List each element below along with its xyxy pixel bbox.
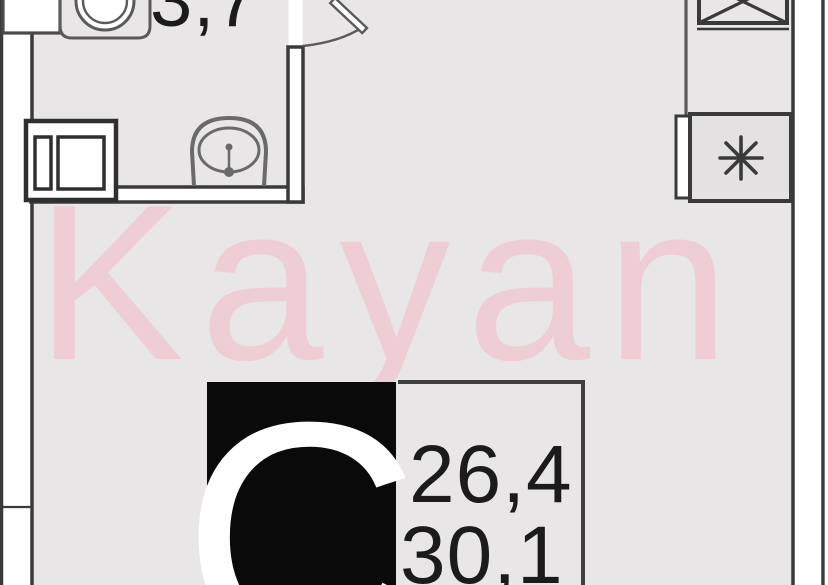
bathroom-area-label: 3,7 xyxy=(150,0,259,43)
wash-basin-icon xyxy=(76,0,134,30)
door-leaf xyxy=(330,0,367,33)
kitchen-fixtures xyxy=(676,0,791,201)
fridge-snowflake-icon xyxy=(720,137,762,179)
shaft-slot-large xyxy=(58,137,104,189)
toilet-icon xyxy=(192,118,266,186)
living-area-value: 26,4 xyxy=(409,429,573,520)
shaft-slot-small xyxy=(35,137,51,189)
sink-x-2 xyxy=(699,0,787,23)
shaft-icon xyxy=(26,121,116,200)
bath-cabinet xyxy=(3,0,60,33)
floor-plan-drawing: 3,7 С 26,4 30,1 xyxy=(0,0,828,585)
floor-plan: Kayan xyxy=(0,0,828,585)
bathroom-door-opening xyxy=(289,0,303,47)
left-wall xyxy=(2,0,33,585)
sink-x-1 xyxy=(699,0,787,23)
kitchen-sink-icon xyxy=(697,0,789,29)
door-arc xyxy=(303,27,363,46)
unit-label-block: С 26,4 30,1 xyxy=(182,353,583,585)
right-wall xyxy=(793,0,823,585)
toilet-dot-top xyxy=(226,144,233,151)
total-area-value: 30,1 xyxy=(400,510,564,585)
sink-box xyxy=(699,0,787,23)
bathroom-east-wall xyxy=(288,47,303,202)
door-swing-icon xyxy=(303,0,367,46)
toilet-dot-bottom xyxy=(224,167,234,177)
unit-type-letter: С xyxy=(182,353,420,585)
